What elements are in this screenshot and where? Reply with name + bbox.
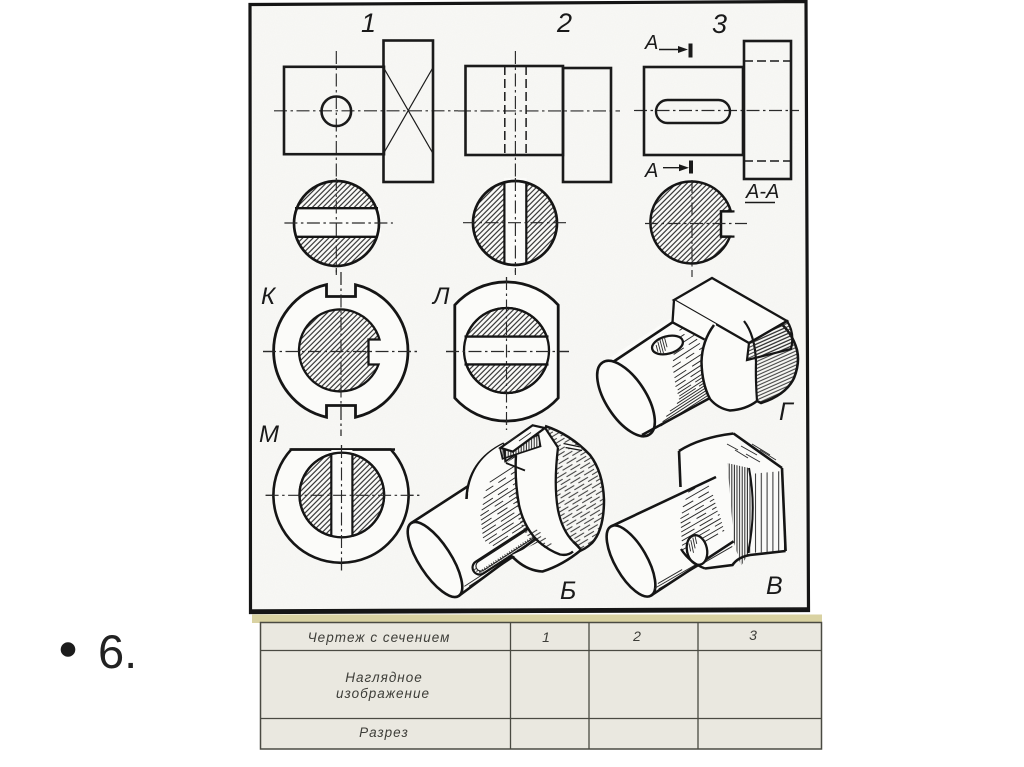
svg-text:A-A: A-A <box>745 181 779 203</box>
svg-text:2: 2 <box>556 8 572 38</box>
svg-text:6.: 6. <box>98 625 137 678</box>
svg-text:A: A <box>644 160 658 182</box>
svg-text:Г: Г <box>779 398 795 426</box>
svg-text:A: A <box>644 32 658 54</box>
svg-text:1: 1 <box>361 8 376 38</box>
svg-text:Л: Л <box>431 283 450 310</box>
svg-text:изображение: изображение <box>336 686 430 701</box>
svg-text:К: К <box>261 283 277 310</box>
svg-text:3: 3 <box>712 9 727 39</box>
svg-text:Наглядное: Наглядное <box>345 670 423 685</box>
svg-text:1: 1 <box>542 629 550 645</box>
svg-text:2: 2 <box>632 628 641 644</box>
svg-text:М: М <box>259 421 279 448</box>
svg-text:Чертеж с сечением: Чертеж с сечением <box>308 630 451 645</box>
svg-text:3: 3 <box>749 627 757 643</box>
svg-text:Разрез: Разрез <box>359 725 409 740</box>
svg-text:В: В <box>766 572 783 600</box>
svg-text:Б: Б <box>560 577 576 605</box>
